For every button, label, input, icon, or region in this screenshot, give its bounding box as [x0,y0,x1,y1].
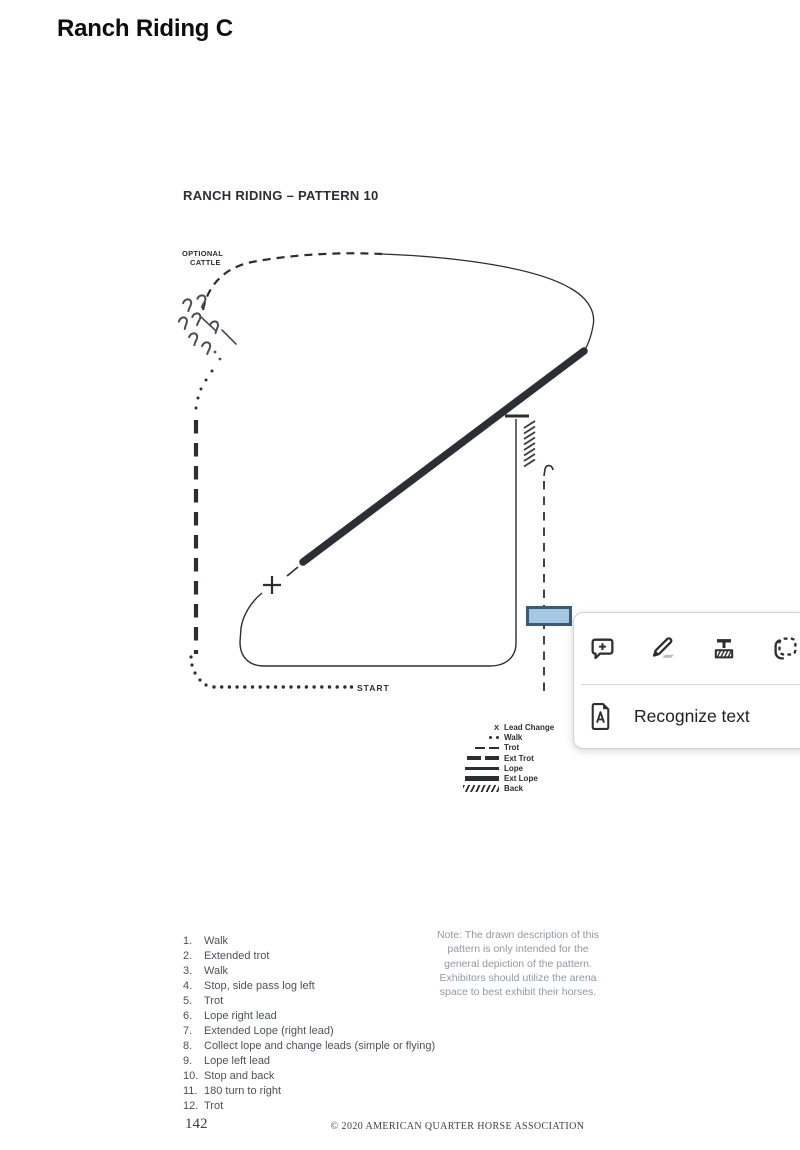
instruction-text: Lope right lead [204,1010,277,1022]
highlighter-icon [650,635,677,662]
recognize-text-icon [589,702,612,731]
instruction-number: 2. [183,950,204,962]
walk-dots-start-line [189,655,353,688]
instruction-item: 12.Trot [183,1098,513,1113]
instruction-text: Walk [204,965,228,977]
instruction-number: 6. [183,1010,204,1022]
instruction-item: 9.Lope left lead [183,1053,513,1068]
instruction-text: Extended trot [204,950,269,962]
legend-label: Lead Change [504,723,554,732]
pattern-heading: RANCH RIDING – PATTERN 10 [183,188,379,203]
walk-dots-upper [195,370,214,410]
lead-change-x-symbol: X [494,723,499,732]
add-comment-icon [589,635,616,662]
optional-cattle-label-1: OPTIONAL [182,249,223,258]
instruction-number: 8. [183,1040,204,1052]
legend-row-walk: Walk [440,732,575,742]
instruction-text: Stop and back [204,1070,274,1082]
snip-selection-icon [772,635,799,662]
legend-label: Lope [504,764,523,773]
legend-row-back: Back [440,784,575,794]
legend-label: Walk [504,733,522,742]
annotation-toolbar [574,613,800,684]
lope-inner-boundary [240,419,516,666]
lope-line-symbol [440,767,504,770]
copyright-line: © 2020 AMERICAN QUARTER HORSE ASSOCIATIO… [310,1121,605,1132]
optional-cattle-label-2: CATTLE [190,258,221,267]
instruction-number: 4. [183,980,204,992]
trot-top-curve [203,253,382,310]
lope-top-curve [382,254,594,351]
ext-lope-diagonal [303,351,584,562]
instruction-number: 12. [183,1100,204,1112]
page-number: 142 [185,1116,208,1133]
instruction-number: 7. [183,1025,204,1037]
legend-label: Back [504,784,523,793]
highlight-text-icon [711,636,737,662]
trot-hook [544,466,553,476]
legend-row-ext-lope: Ext Lope [440,773,575,783]
instruction-item: 10.Stop and back [183,1068,513,1083]
legend-row-lead-change: X Lead Change [440,722,575,732]
ext-trot-dashes-symbol [440,756,504,760]
instruction-number: 3. [183,965,204,977]
instruction-text: Collect lope and change leads (simple or… [204,1040,435,1052]
draw-highlighter-button[interactable] [649,635,677,663]
pattern-legend: X Lead Change Walk Trot Ext Trot Lope Ex… [440,722,575,794]
back-hatches-symbol [440,785,504,792]
recognize-text-menu-item[interactable]: Recognize text [574,685,800,747]
legend-label: Ext Trot [504,754,534,763]
instruction-number: 11. [183,1085,204,1097]
instruction-text: Walk [204,935,228,947]
walk-dots-symbol [440,736,504,739]
instruction-item: 6.Lope right lead [183,1008,513,1023]
add-comment-button[interactable] [588,635,616,663]
legend-row-ext-trot: Ext Trot [440,753,575,763]
instruction-item: 7.Extended Lope (right lead) [183,1023,513,1038]
instruction-text: Lope left lead [204,1055,270,1067]
trot-dashes-symbol [440,747,504,749]
legend-row-trot: Trot [440,743,575,753]
instruction-number: 10. [183,1070,204,1082]
instruction-number: 5. [183,995,204,1007]
lead-change-plus [263,576,281,594]
back-hatch-marks [524,421,535,467]
annotation-popup: Recognize text [573,612,800,749]
snip-selection-button[interactable] [771,635,799,663]
instruction-number: 1. [183,935,204,947]
selection-highlight[interactable] [526,606,572,626]
legend-row-lope: Lope [440,763,575,773]
instruction-item: 11.180 turn to right [183,1083,513,1098]
pattern-diagram: OPTIONAL CATTLE START [165,240,625,700]
legend-label: Ext Lope [504,774,538,783]
instruction-text: 180 turn to right [204,1085,281,1097]
instruction-text: Stop, side pass log left [204,980,315,992]
pdf-page: Ranch Riding C RANCH RIDING – PATTERN 10 [0,0,800,1150]
ext-lope-line-symbol [440,776,504,782]
instruction-item: 8.Collect lope and change leads (simple … [183,1038,513,1053]
recognize-text-label: Recognize text [634,706,750,727]
pattern-note: Note: The drawn description of this patt… [428,928,608,999]
instruction-number: 9. [183,1055,204,1067]
start-label: START [357,683,390,693]
legend-label: Trot [504,743,519,752]
instruction-text: Trot [204,1100,223,1112]
highlight-text-button[interactable] [710,635,738,663]
page-title: Ranch Riding C [57,15,233,43]
instruction-text: Extended Lope (right lead) [204,1025,334,1037]
cattle-symbols [178,295,236,361]
diagonal-connector [287,567,298,576]
instruction-text: Trot [204,995,223,1007]
